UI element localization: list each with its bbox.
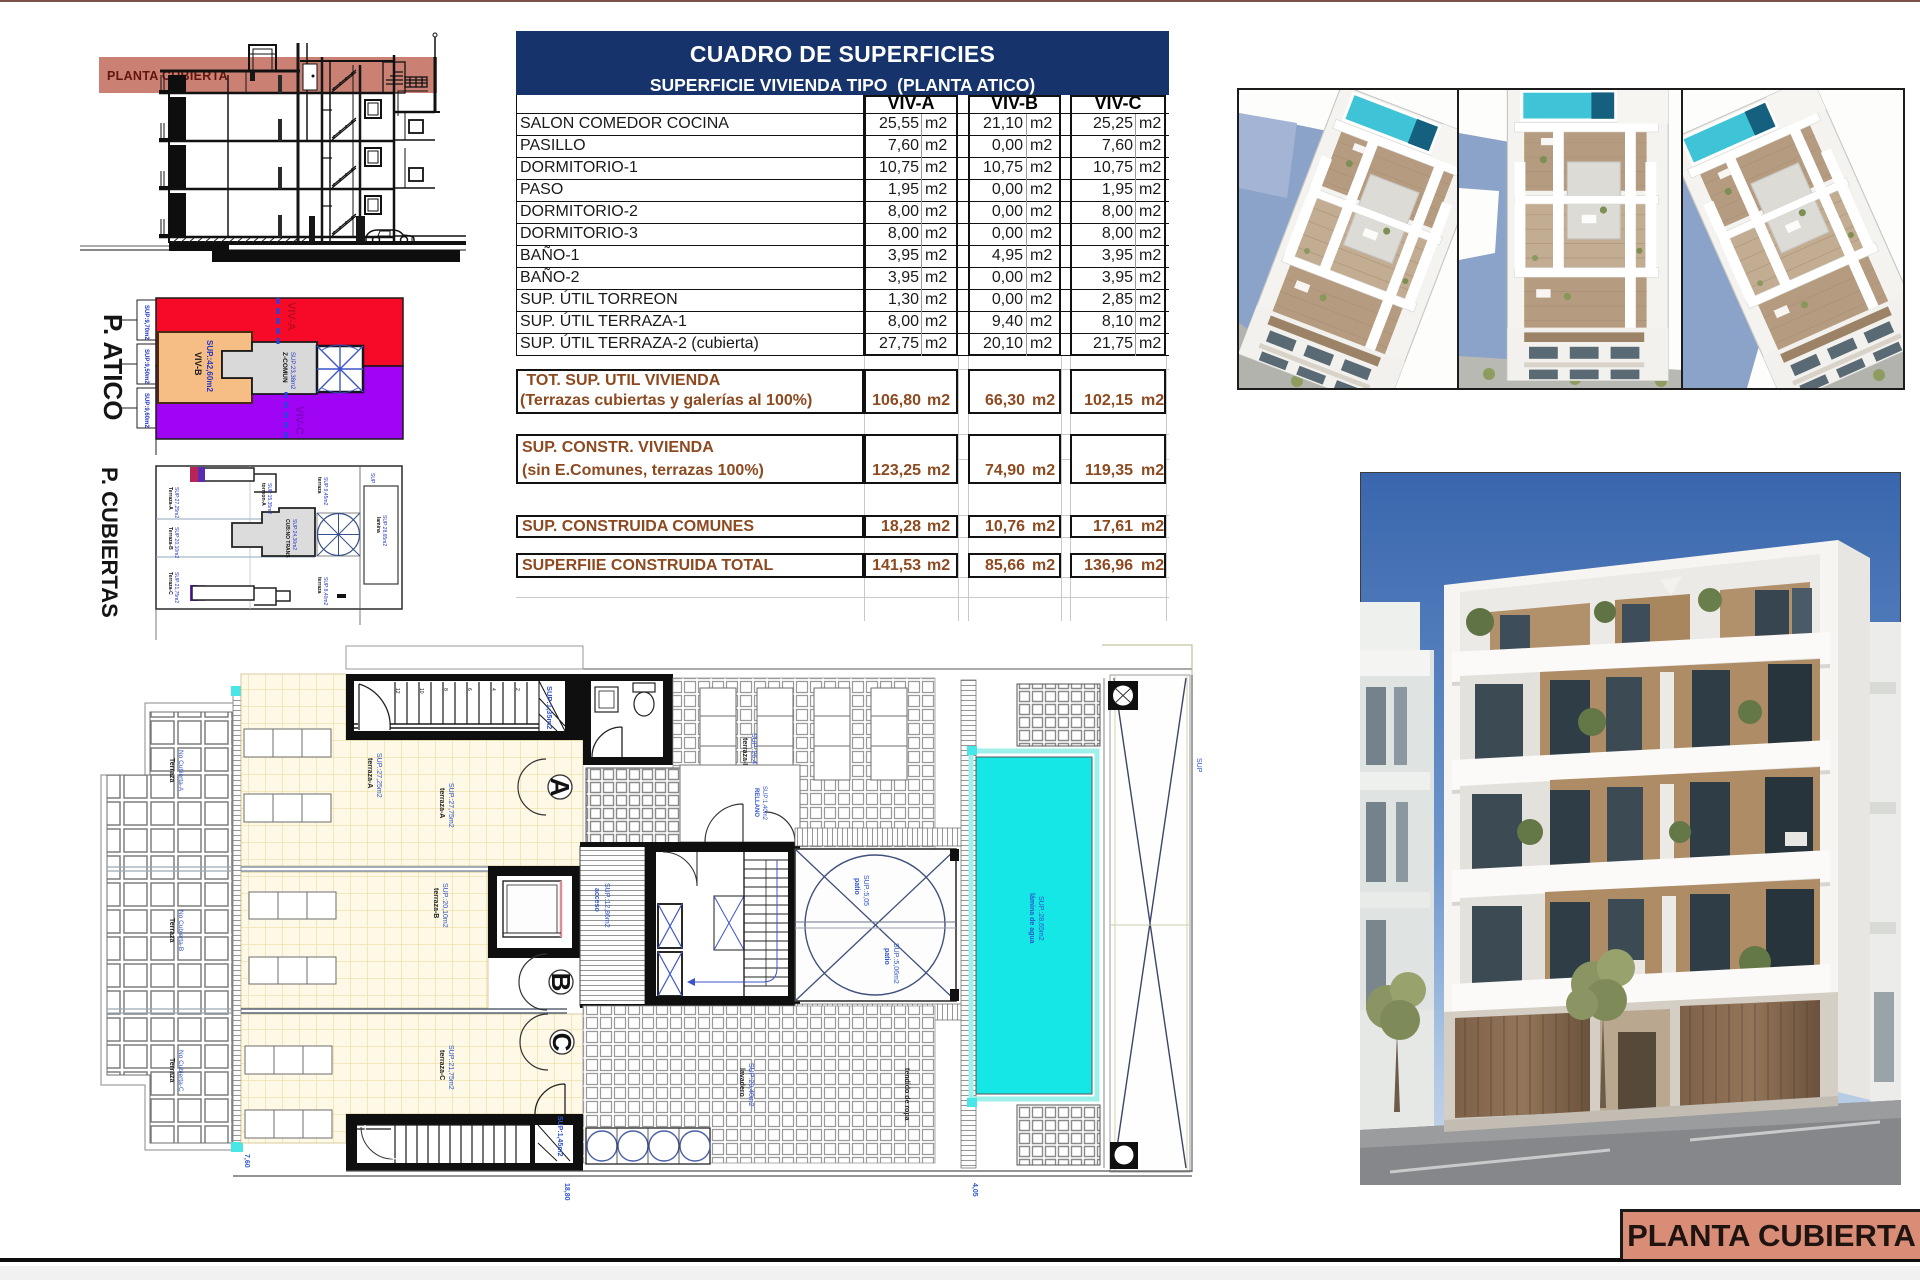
svg-text:P. CUBIERTAS: P. CUBIERTAS — [97, 467, 122, 618]
svg-text:SUP:23,38m2: SUP:23,38m2 — [289, 352, 295, 390]
svg-text:SUP:9,50m2: SUP:9,50m2 — [143, 349, 149, 384]
svg-text:Terraza-A: Terraza-A — [167, 487, 173, 510]
svg-text:SUP: SUP — [369, 473, 375, 484]
svg-text:SUP.:20,10m2: SUP.:20,10m2 — [441, 883, 448, 928]
svg-text:No Cubierta-B: No Cubierta-B — [177, 910, 184, 951]
svg-text:terraza-B: terraza-B — [741, 738, 748, 768]
svg-text:SUP:9,70m2: SUP:9,70m2 — [143, 305, 149, 340]
svg-text:terraza: terraza — [316, 477, 322, 494]
svg-text:SUP:1,35m2: SUP:1,35m2 — [545, 686, 554, 729]
svg-text:No Cubierta-A: No Cubierta-A — [177, 750, 184, 792]
svg-text:No Cubierta-C: No Cubierta-C — [177, 1050, 184, 1092]
svg-text:SUP:21,75m2: SUP:21,75m2 — [173, 572, 179, 603]
svg-text:CUB:NO TRANS: CUB:NO TRANS — [284, 519, 290, 558]
svg-text:lavadero: lavadero — [738, 1068, 745, 1097]
svg-text:Terraza: Terraza — [168, 758, 175, 782]
svg-text:terraza-A: terraza-A — [366, 758, 373, 788]
svg-text:Terraza: Terraza — [168, 918, 175, 942]
svg-text:tendido de ropa: tendido de ropa — [903, 1068, 910, 1121]
svg-text:VIV-B: VIV-B — [193, 352, 203, 376]
svg-text:SUP.:27,25m2: SUP.:27,25m2 — [375, 753, 382, 798]
svg-text:Z-COMUN: Z-COMUN — [281, 352, 288, 383]
svg-text:SUP:9,45m2: SUP:9,45m2 — [322, 477, 328, 506]
svg-text:2: 2 — [514, 688, 520, 691]
svg-text:7,60: 7,60 — [243, 1154, 250, 1168]
svg-text:8: 8 — [442, 688, 448, 691]
svg-text:SUP:20,10m2: SUP:20,10m2 — [173, 527, 179, 558]
svg-text:VIV-A: VIV-A — [285, 302, 297, 331]
svg-text:SUP.:21,75m2: SUP.:21,75m2 — [447, 1045, 454, 1090]
svg-text:SUP.:27,75m2: SUP.:27,75m2 — [447, 783, 454, 828]
svg-text:SUP:8,40m2: SUP:8,40m2 — [322, 577, 328, 606]
svg-text:terraza-B: terraza-B — [432, 888, 439, 918]
svg-text:B: B — [546, 973, 576, 992]
svg-text:VIV-C: VIV-C — [293, 406, 305, 435]
svg-text:SUP:28,65m2: SUP:28,65m2 — [381, 515, 387, 546]
svg-text:P. ATICO: P. ATICO — [98, 314, 128, 420]
svg-text:SUP:24,30m2: SUP:24,30m2 — [291, 519, 297, 550]
svg-text:terraza: terraza — [316, 577, 322, 594]
svg-text:SUP: SUP — [1195, 758, 1202, 773]
svg-text:SUP.:28,65m2: SUP.:28,65m2 — [1037, 896, 1044, 941]
svg-text:Terraza: Terraza — [168, 1058, 175, 1082]
svg-text:acceso: acceso — [593, 888, 600, 912]
svg-text:SUP:1,40m2: SUP:1,40m2 — [761, 786, 767, 821]
svg-text:SUP:29,40m2: SUP:29,40m2 — [747, 1063, 754, 1107]
svg-text:12: 12 — [394, 688, 400, 694]
svg-text:4,05: 4,05 — [971, 1183, 978, 1197]
svg-text:6: 6 — [466, 688, 472, 691]
svg-text:SUP:9,60m2: SUP:9,60m2 — [143, 393, 149, 428]
svg-text:Terraza-B: Terraza-B — [167, 527, 173, 550]
svg-text:lámina de agua: lámina de agua — [1028, 893, 1035, 944]
svg-text:torreon-A: torreon-A — [260, 483, 266, 506]
svg-text:terraza-A: terraza-A — [438, 788, 445, 818]
svg-text:lamina: lamina — [375, 517, 381, 533]
svg-text:4: 4 — [490, 688, 496, 691]
svg-text:SUP:1,45m2: SUP:1,45m2 — [556, 1116, 563, 1157]
svg-text:SUP.:12,86m2: SUP.:12,86m2 — [603, 883, 610, 928]
svg-text:18,80: 18,80 — [563, 1183, 570, 1201]
svg-text:patio: patio — [883, 948, 890, 965]
svg-text:SUP:27,25m2: SUP:27,25m2 — [173, 487, 179, 518]
svg-text:Terraza-C: Terraza-C — [167, 572, 173, 595]
svg-text:SUP.:5,06m2: SUP.:5,06m2 — [892, 943, 899, 984]
svg-text:patio: patio — [853, 878, 860, 895]
svg-text:RELLANO: RELLANO — [753, 788, 759, 817]
svg-text:A: A — [545, 778, 575, 797]
svg-text:C: C — [547, 1033, 577, 1052]
svg-text:SUP.:5,05: SUP.:5,05 — [862, 875, 869, 906]
svg-text:SUP.:42,60m2: SUP.:42,60m2 — [205, 340, 214, 392]
svg-text:SUP:15,35m2: SUP:15,35m2 — [266, 483, 272, 514]
svg-text:terraza-C: terraza-C — [438, 1050, 445, 1080]
svg-text:10: 10 — [418, 688, 424, 694]
